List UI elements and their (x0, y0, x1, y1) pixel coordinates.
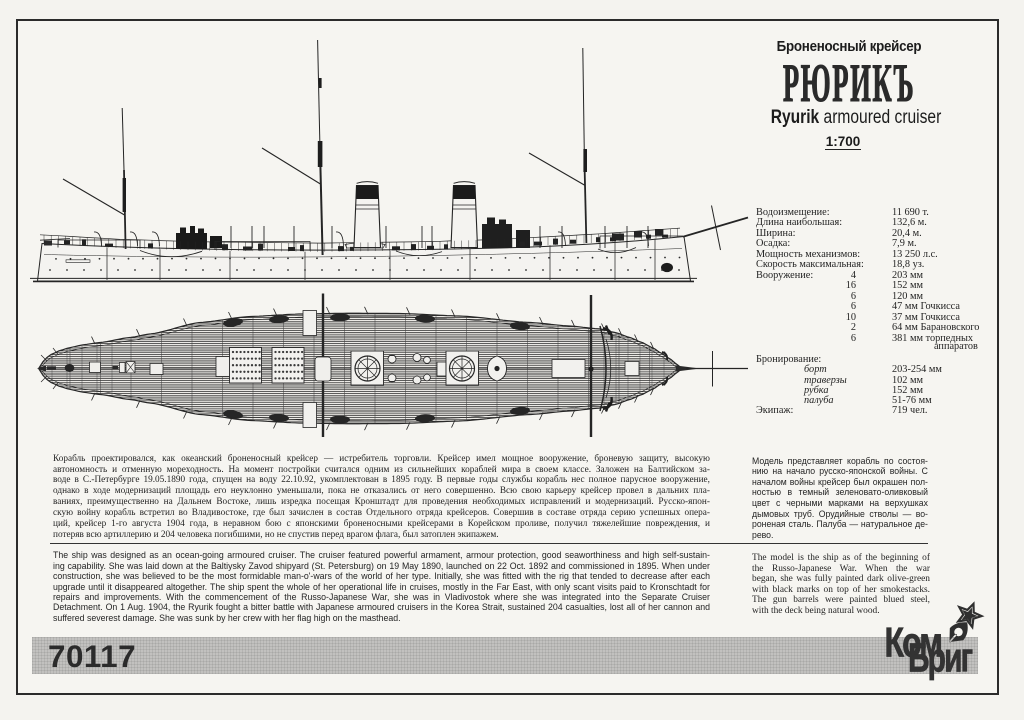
svg-text:Бриг: Бриг (908, 635, 972, 681)
